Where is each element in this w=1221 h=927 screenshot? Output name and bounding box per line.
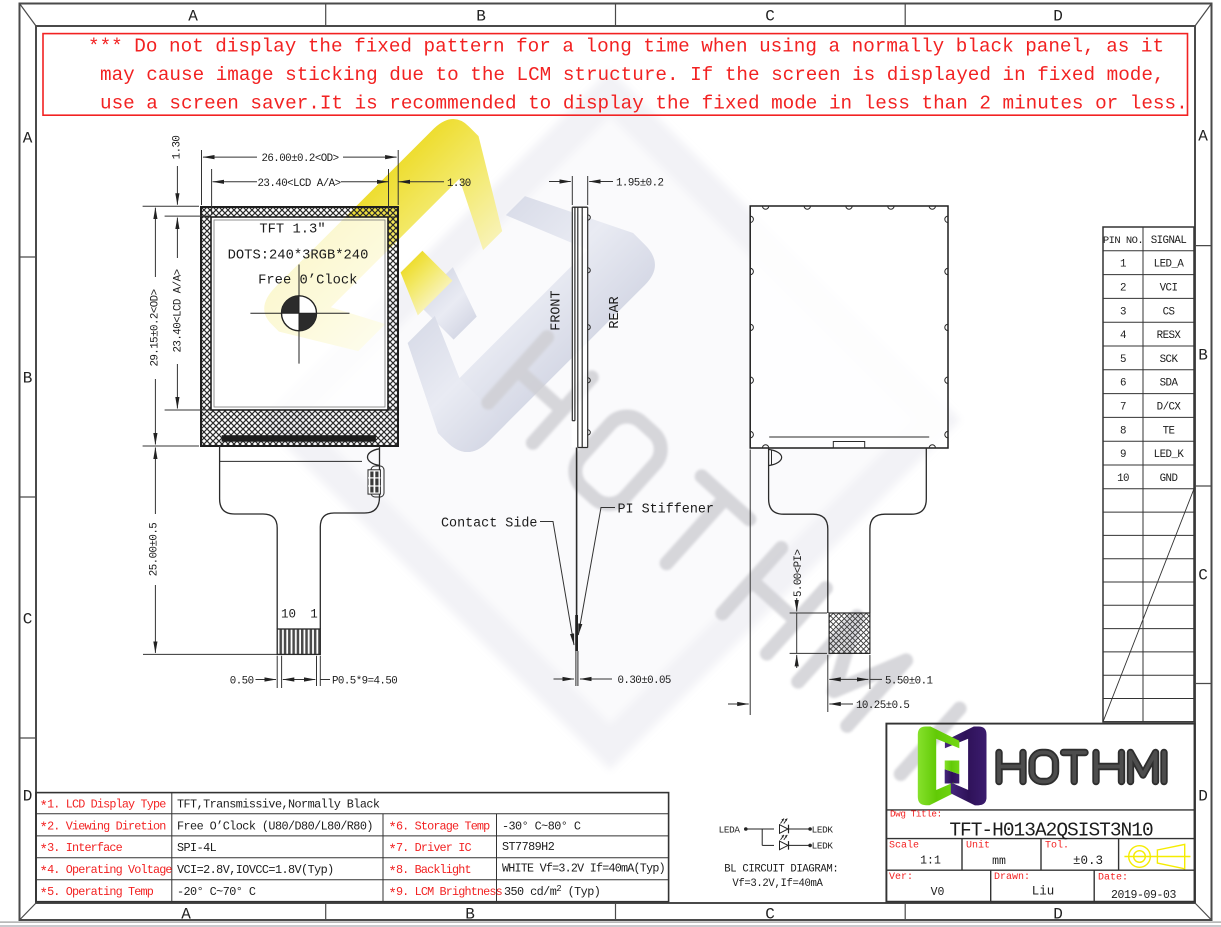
svg-text:8: 8	[1120, 425, 1126, 437]
svg-text:SIGNAL: SIGNAL	[1151, 235, 1187, 247]
svg-text:C: C	[765, 8, 775, 26]
svg-text:WHITE Vf=3.2V If=40mA(Typ): WHITE Vf=3.2V If=40mA(Typ)	[502, 862, 665, 876]
svg-text:23.40<LCD A/A>: 23.40<LCD A/A>	[257, 178, 340, 190]
svg-text:C: C	[765, 906, 775, 924]
svg-text:2019-09-03: 2019-09-03	[1111, 889, 1177, 902]
svg-text:9: 9	[1120, 449, 1126, 461]
svg-text:VCI=2.8V,IOVCC=1.8V(Typ): VCI=2.8V,IOVCC=1.8V(Typ)	[177, 863, 334, 877]
svg-text:LEDK: LEDK	[812, 841, 834, 852]
svg-text:Free 0’Clock: Free 0’Clock	[258, 272, 357, 288]
svg-text:10: 10	[1117, 473, 1129, 485]
svg-text:TE: TE	[1163, 425, 1175, 437]
svg-text:A: A	[1198, 128, 1208, 146]
svg-text:C: C	[1198, 567, 1208, 585]
svg-text:VCI: VCI	[1160, 283, 1178, 295]
svg-text:-20° C~70° C: -20° C~70° C	[177, 885, 256, 899]
svg-text:A: A	[23, 130, 33, 148]
svg-text:Contact Side: Contact Side	[441, 517, 537, 532]
svg-text:TFT,Transmissive,Normally Blac: TFT,Transmissive,Normally Black	[177, 798, 380, 812]
svg-text:0.50: 0.50	[230, 676, 254, 688]
svg-text:D/CX: D/CX	[1157, 402, 1182, 414]
svg-text:PI Stiffener: PI Stiffener	[618, 503, 714, 518]
svg-text:1.30: 1.30	[447, 178, 471, 190]
svg-text:Liu: Liu	[1032, 885, 1055, 899]
svg-text:D: D	[1053, 8, 1063, 26]
svg-text:-30° C~80° C: -30° C~80° C	[502, 819, 581, 833]
svg-text:D: D	[1198, 788, 1208, 806]
svg-text:5.50±0.1: 5.50±0.1	[885, 675, 933, 687]
svg-text:1.30: 1.30	[171, 136, 183, 160]
svg-text:D: D	[23, 788, 33, 806]
svg-text:LED_K: LED_K	[1154, 449, 1185, 461]
svg-text:A: A	[181, 906, 191, 924]
svg-text:GND: GND	[1160, 473, 1178, 485]
svg-text:LEDK: LEDK	[812, 824, 834, 835]
svg-text:Ver:: Ver:	[889, 872, 913, 883]
svg-text:0.30±0.05: 0.30±0.05	[618, 675, 671, 687]
svg-text:1.95±0.2: 1.95±0.2	[616, 177, 664, 189]
svg-text:SDA: SDA	[1160, 378, 1179, 390]
svg-text:Vf=3.2V,If=40mA: Vf=3.2V,If=40mA	[732, 878, 823, 890]
svg-text:TFT-H013A2QSIST3N10: TFT-H013A2QSIST3N10	[949, 820, 1153, 842]
svg-text:B: B	[465, 906, 475, 924]
svg-text:5.00<PI>: 5.00<PI>	[793, 550, 805, 598]
svg-text:B: B	[1198, 347, 1208, 365]
svg-text:DOTS:240*3RGB*240: DOTS:240*3RGB*240	[228, 248, 369, 264]
svg-text:CS: CS	[1163, 306, 1175, 318]
svg-text:10.25±0.5: 10.25±0.5	[856, 700, 909, 712]
svg-text:25.00±0.5: 25.00±0.5	[149, 523, 161, 576]
svg-text:10: 10	[281, 608, 296, 622]
svg-text:D: D	[1053, 906, 1063, 924]
svg-text:*** Do not display the fixed p: *** Do not display the fixed pattern for…	[88, 36, 1164, 58]
svg-text:1: 1	[310, 608, 318, 622]
svg-text:SCK: SCK	[1160, 354, 1179, 366]
svg-text:4: 4	[1120, 330, 1126, 342]
svg-text:PIN NO.: PIN NO.	[1103, 235, 1143, 247]
svg-text:mm: mm	[992, 855, 1006, 868]
svg-text:FRONT: FRONT	[550, 291, 565, 331]
svg-text:5: 5	[1120, 354, 1126, 366]
svg-text:1: 1	[1120, 259, 1126, 271]
svg-text:1:1: 1:1	[920, 855, 941, 868]
svg-text:26.00±0.2<OD>: 26.00±0.2<OD>	[261, 153, 338, 165]
svg-text:ST7789H2: ST7789H2	[502, 840, 555, 854]
svg-text:C: C	[23, 611, 33, 629]
svg-text:SPI-4L: SPI-4L	[177, 841, 217, 855]
svg-text:Drawn:: Drawn:	[994, 872, 1030, 883]
svg-text:may cause image sticking due t: may cause image sticking due to the LCM …	[100, 64, 1165, 86]
svg-text:2: 2	[1120, 283, 1126, 295]
svg-text:TFT 1.3″: TFT 1.3″	[259, 222, 325, 238]
svg-text:3: 3	[1120, 306, 1126, 318]
svg-text:Date:: Date:	[1098, 873, 1128, 884]
svg-text:Scale: Scale	[889, 840, 919, 852]
svg-text:REAR: REAR	[608, 296, 623, 328]
svg-text:23.40<LCD A/A>: 23.40<LCD A/A>	[172, 269, 184, 352]
svg-text:29.15±0.2<OD>: 29.15±0.2<OD>	[149, 289, 161, 366]
svg-text:350 cd/m2 (Typ): 350 cd/m2 (Typ)	[504, 884, 600, 899]
svg-text:use a screen saver.It is recom: use a screen saver.It is recommended to …	[100, 93, 1188, 115]
svg-text:6: 6	[1120, 378, 1126, 390]
svg-text:BL CIRCUIT DIAGRAM:: BL CIRCUIT DIAGRAM:	[724, 863, 838, 875]
svg-text:Dwg Title:: Dwg Title:	[890, 809, 942, 820]
svg-text:LED_A: LED_A	[1154, 259, 1185, 271]
svg-text:7: 7	[1120, 402, 1126, 414]
svg-text:Free O’Clock (U80/D80/L80/R80): Free O’Clock (U80/D80/L80/R80)	[177, 819, 373, 833]
svg-text:A: A	[188, 8, 198, 26]
svg-text:B: B	[23, 370, 33, 388]
svg-text:RESX: RESX	[1157, 330, 1182, 342]
svg-text:±0.3: ±0.3	[1073, 854, 1103, 868]
svg-text:B: B	[476, 8, 486, 26]
svg-text:LEDA: LEDA	[719, 824, 741, 835]
svg-text:V0: V0	[931, 886, 945, 899]
svg-text:P0.5*9=4.50: P0.5*9=4.50	[332, 676, 397, 688]
